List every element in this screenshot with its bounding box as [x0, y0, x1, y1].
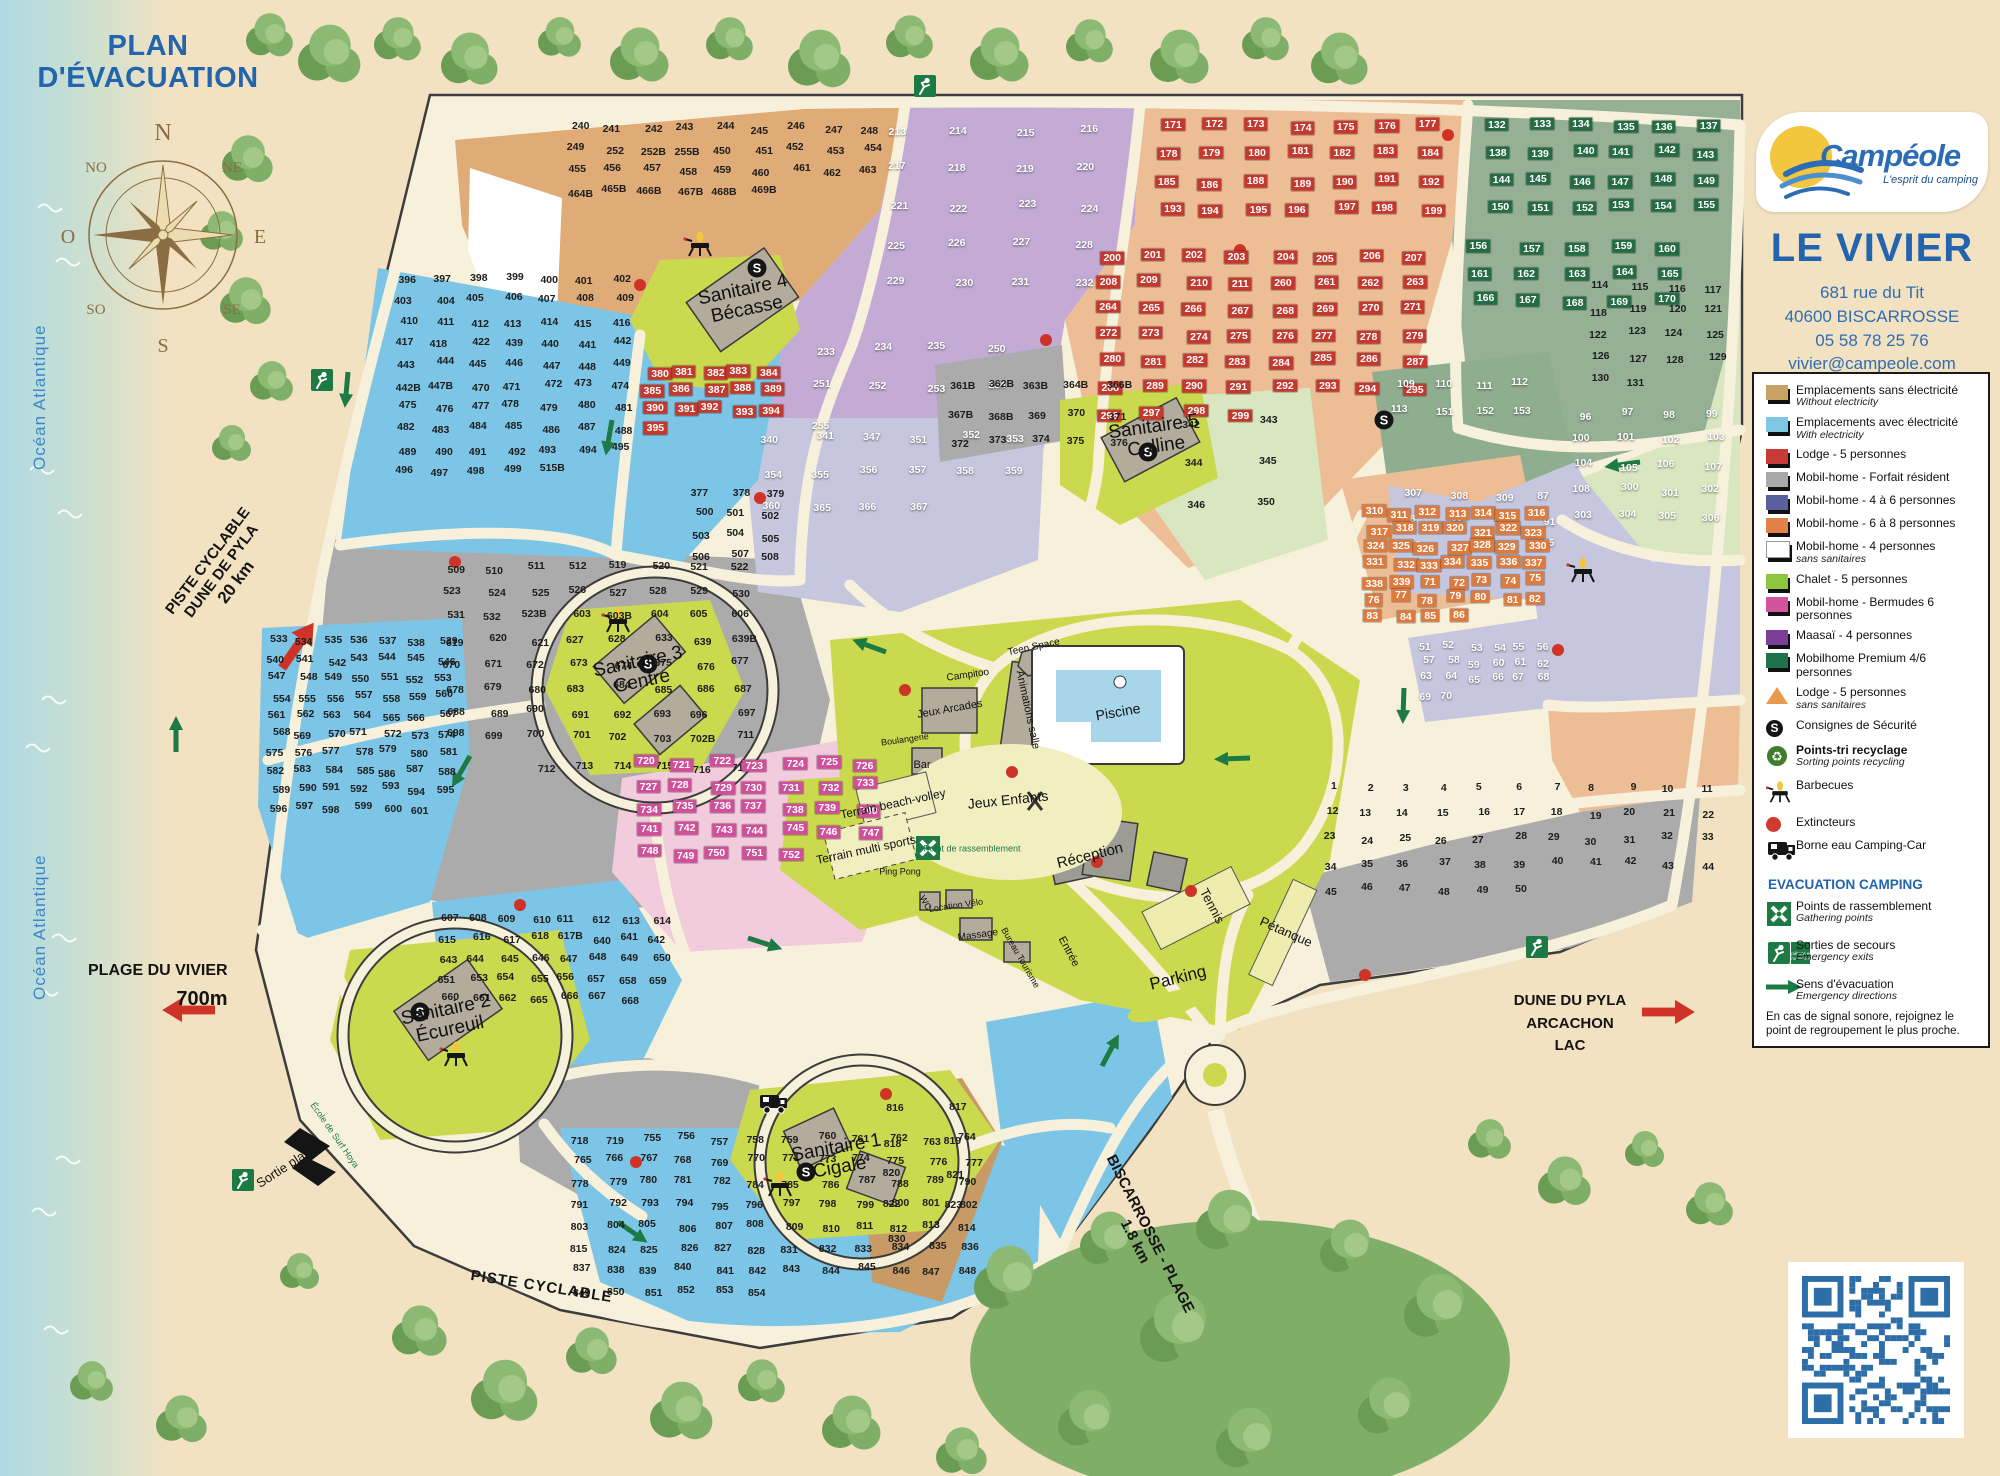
legend-label: Chalet - 5 personnes: [1796, 573, 1907, 586]
triangle: [1766, 687, 1788, 704]
bbq-icon: [1766, 780, 1794, 809]
gather-icon: [1766, 901, 1792, 932]
legend-label: Extincteurs: [1796, 816, 1855, 829]
legend-swatch: [1766, 495, 1788, 510]
legend-item: Barbecues: [1766, 779, 1978, 809]
pool-complex: [1032, 646, 1184, 764]
legend-item: Mobil-home - Bermudes 6 personnes: [1766, 596, 1978, 623]
campground-map: S: [0, 0, 2000, 1476]
logo-tagline: L'esprit du camping: [1883, 174, 1978, 186]
site-name: LE VIVIER: [1756, 226, 1988, 271]
legend-label: Sens d'évacuation: [1796, 978, 1897, 991]
legend-item: piétons etmotorisésSorties de secoursEme…: [1766, 939, 1978, 971]
legend-label: Sorties de secours: [1796, 939, 1895, 952]
legend-swatch: [1766, 385, 1788, 400]
legend-label: Emplacements sans électricité: [1796, 384, 1958, 397]
legend-item: Emplacements sans électricitéWithout ele…: [1766, 384, 1978, 409]
legend-sublabel: Sorting points recycling: [1796, 757, 1907, 769]
legend-item: Extincteurs: [1766, 816, 1978, 832]
svg-text:NE: NE: [222, 160, 242, 176]
legend-sublabel: With electricity: [1796, 430, 1958, 442]
legend-label: Points de rassemblement: [1796, 900, 1931, 913]
plage-vivier-label: PLAGE DU VIVIER 700m: [88, 962, 228, 1011]
legend-sublabel: Without electricity: [1796, 397, 1958, 409]
legend-item: Sens d'évacuationEmergency directions: [1766, 978, 1978, 1003]
legend-swatch: [1766, 541, 1790, 558]
legend-swatch: [1766, 449, 1788, 464]
svg-text:SO: SO: [86, 302, 105, 318]
compass-rose: [89, 161, 237, 309]
legend-item: Borne eau Camping-Car: [1766, 839, 1978, 867]
page-title: PLAND'ÉVACUATION: [28, 30, 268, 95]
legend-note: En cas de signal sonore, rejoignez le po…: [1766, 1010, 1978, 1039]
legend-item: ♻Points-tri recyclageSorting points recy…: [1766, 744, 1978, 772]
legend-label: Emplacements avec électricité: [1796, 416, 1958, 429]
phone: 05 58 78 25 76: [1756, 329, 1988, 353]
svg-text:SE: SE: [223, 302, 241, 318]
evacuation-heading: EVACUATION CAMPING: [1768, 877, 1978, 892]
address-line2: 40600 BISCARROSSE: [1756, 305, 1988, 329]
legend-item: Lodge - 5 personnessans sanitaires: [1766, 686, 1978, 711]
legend-sublabel: sans sanitaires: [1796, 700, 1906, 712]
campeole-logo: Campéole L'esprit du camping: [1756, 112, 1988, 212]
legend-label: Mobil-home - Bermudes 6 personnes: [1796, 596, 1978, 623]
legend-label: Barbecues: [1796, 779, 1853, 792]
legend-item: Mobilhome Premium 4/6 personnes: [1766, 652, 1978, 679]
legend-swatch: [1766, 518, 1788, 533]
legend-label: Points-tri recyclage: [1796, 744, 1907, 757]
svg-text:O: O: [61, 226, 75, 248]
legend-sublabel: Gathering points: [1796, 913, 1931, 925]
svg-text:S: S: [157, 335, 168, 357]
svg-text:E: E: [254, 226, 266, 248]
ocean-label-bottom: Océan Atlantique: [30, 855, 50, 1000]
legend-swatch: [1766, 574, 1788, 589]
legend-label: Consignes de Sécurité: [1796, 719, 1917, 732]
svg-text:N: N: [154, 120, 171, 146]
brand-panel: Campéole L'esprit du camping LE VIVIER 6…: [1756, 112, 1988, 376]
logo-wordmark: Campéole: [1820, 138, 1960, 174]
legend-label: Mobil-home - Forfait résident: [1796, 471, 1949, 484]
legend-panel: Emplacements sans électricitéWithout ele…: [1752, 372, 1990, 1048]
legend-label: Maasaï - 4 personnes: [1796, 629, 1912, 642]
legend-sublabel: Emergency directions: [1796, 991, 1897, 1003]
legend-item: Chalet - 5 personnes: [1766, 573, 1978, 589]
legend-swatch: [1766, 597, 1788, 612]
legend-swatch: [1766, 472, 1788, 487]
legend-item: Mobil-home - Forfait résident: [1766, 471, 1978, 487]
dot: [1766, 817, 1781, 832]
qr-code[interactable]: [1788, 1262, 1964, 1438]
legend-item: Mobil-home - 6 à 8 personnes: [1766, 517, 1978, 533]
legend-swatch: [1766, 417, 1788, 432]
legend-swatch: [1766, 653, 1788, 668]
legend-swatch: [1766, 630, 1788, 645]
legend-label: Borne eau Camping-Car: [1796, 839, 1926, 852]
legend-label: Mobil-home - 4 personnes: [1796, 540, 1935, 553]
svg-text:♻: ♻: [1771, 749, 1783, 764]
legend-label: Mobil-home - 6 à 8 personnes: [1796, 517, 1955, 530]
legend-item: Maasaï - 4 personnes: [1766, 629, 1978, 645]
s-icon: S: [1766, 720, 1783, 737]
legend-sublabel: sans sanitaires: [1796, 554, 1935, 566]
truck-icon: [1766, 840, 1796, 867]
roundabout-island: [1203, 1063, 1227, 1087]
legend-item: Mobil-home - 4 personnessans sanitaires: [1766, 540, 1978, 565]
recycle-icon: ♻: [1766, 745, 1788, 772]
legend-item: Mobil-home - 4 à 6 personnes: [1766, 494, 1978, 510]
legend-label: Lodge - 5 personnes: [1796, 686, 1906, 699]
legend-item: SConsignes de Sécurité: [1766, 719, 1978, 737]
legend-item: Emplacements avec électricitéWith electr…: [1766, 416, 1978, 441]
legend-label: Mobilhome Premium 4/6 personnes: [1796, 652, 1978, 679]
svg-text:NO: NO: [85, 160, 107, 176]
address-line1: 681 rue du Tit: [1756, 281, 1988, 305]
legend-label: Mobil-home - 4 à 6 personnes: [1796, 494, 1955, 507]
ocean-strip: [0, 0, 170, 1476]
legend-item: Lodge - 5 personnes: [1766, 448, 1978, 464]
ocean-label-top: Océan Atlantique: [30, 325, 50, 470]
dune-pyla-arcachon-label: DUNE DU PYLA ARCACHON LAC: [1490, 990, 1650, 1058]
legend-item: Points de rassemblementGathering points: [1766, 900, 1978, 932]
legend-sublabel: Emergency exits: [1796, 952, 1895, 964]
legend-label: Lodge - 5 personnes: [1796, 448, 1906, 461]
